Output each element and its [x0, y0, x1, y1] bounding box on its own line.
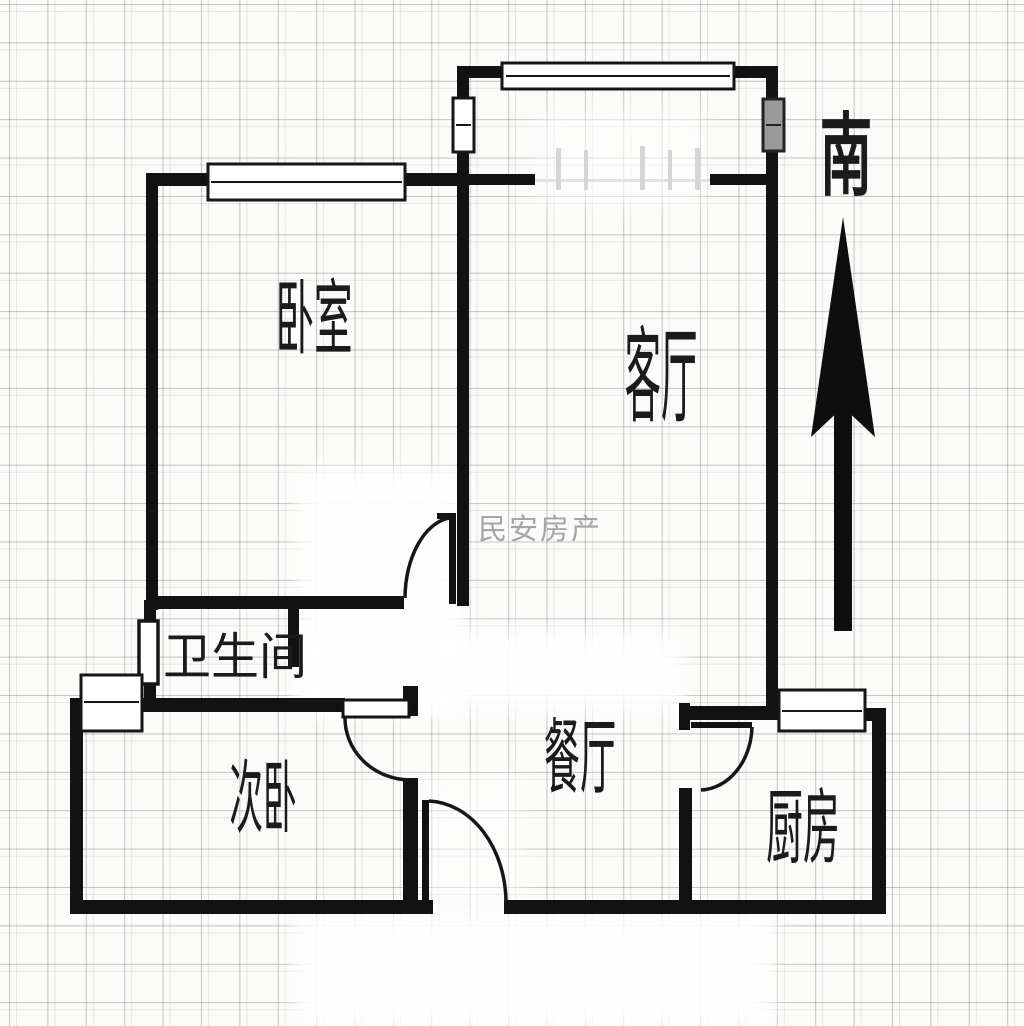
wall — [766, 144, 778, 716]
wall — [146, 596, 404, 609]
wall — [504, 900, 886, 914]
room-label-second-bedroom: 次卧 — [229, 759, 296, 839]
room-label-kitchen: 厨房 — [766, 788, 840, 870]
second-bedroom-door — [343, 700, 409, 780]
compass-south-label: 南 — [820, 112, 872, 202]
kitchen-door — [691, 722, 752, 790]
wall — [679, 706, 780, 720]
arrow-tail — [834, 405, 852, 631]
wall — [403, 778, 418, 914]
south-direction-arrow — [811, 217, 875, 631]
room-label-bathroom: 卫生间 — [163, 632, 307, 682]
wall — [146, 173, 158, 610]
room-label-dining-room: 餐厅 — [544, 718, 616, 800]
arrow-head-icon — [811, 217, 875, 437]
master-bedroom-window — [208, 164, 405, 200]
living-room-top-window — [502, 63, 734, 89]
room-label-living-room: 客厅 — [625, 325, 698, 429]
wall — [710, 174, 768, 185]
wall — [457, 174, 535, 185]
room-label-master-bedroom: 卧室 — [275, 279, 352, 361]
living-room-right-window — [763, 99, 784, 151]
watermark-text: 民安房产 — [478, 515, 602, 544]
wall — [70, 900, 433, 914]
entry-door — [422, 800, 506, 903]
wall — [872, 708, 886, 914]
walls — [70, 66, 886, 914]
master-bedroom-door — [405, 513, 456, 604]
wall — [679, 788, 692, 912]
erased-wall-marks — [535, 146, 710, 190]
corner-bay-window — [81, 675, 142, 731]
kitchen-window — [779, 690, 865, 731]
wall — [457, 173, 469, 606]
floor-plan-canvas: 卧室 客厅 卫生间 次卧 餐厅 厨房 南 民安房产 — [0, 0, 1024, 1026]
living-room-left-window — [453, 98, 474, 152]
